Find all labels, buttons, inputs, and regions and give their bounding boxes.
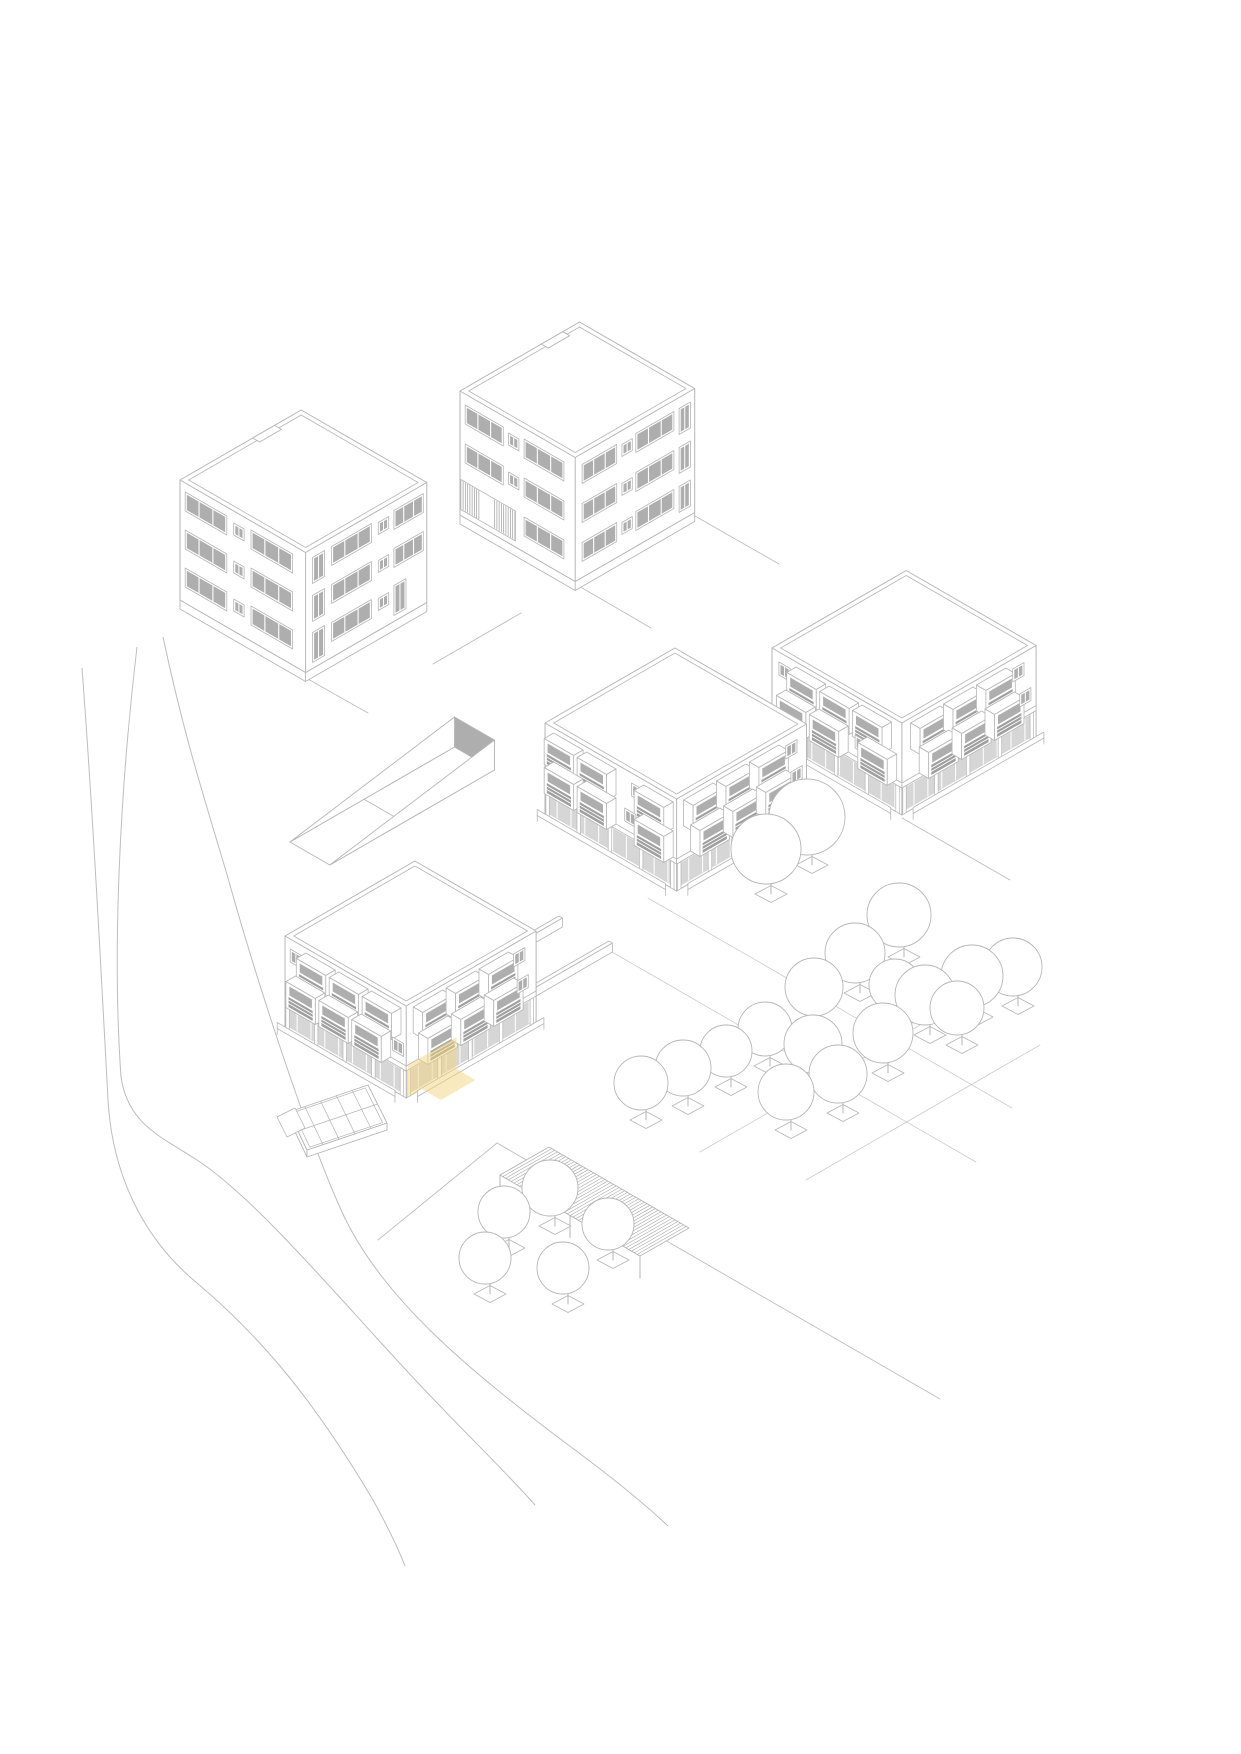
tree bbox=[809, 1045, 867, 1122]
tree-canopy bbox=[522, 1160, 578, 1216]
tree bbox=[537, 1242, 589, 1313]
tree-canopy bbox=[582, 1198, 634, 1250]
tree-canopy bbox=[537, 1242, 589, 1294]
trees bbox=[459, 779, 1042, 1313]
tree-canopy bbox=[853, 1003, 913, 1063]
axonometric-canvas bbox=[0, 0, 1241, 1754]
greenhouse bbox=[277, 1085, 387, 1157]
tree-canopy bbox=[930, 981, 984, 1035]
tree bbox=[930, 981, 984, 1054]
block-southwest bbox=[277, 861, 544, 1103]
tree-canopy bbox=[785, 958, 843, 1016]
tree-canopy bbox=[758, 1064, 814, 1120]
tree bbox=[731, 814, 801, 903]
tree bbox=[758, 1064, 814, 1139]
parking-ramp bbox=[290, 717, 494, 865]
tower-northwest bbox=[180, 410, 427, 682]
tree bbox=[614, 1056, 668, 1129]
tower-north bbox=[460, 322, 695, 591]
tree-canopy bbox=[459, 1232, 511, 1284]
tree-canopy bbox=[478, 1186, 530, 1238]
tree-canopy bbox=[809, 1045, 867, 1103]
tree bbox=[459, 1232, 511, 1303]
tree-canopy bbox=[731, 814, 801, 884]
site-axonometric-drawing bbox=[0, 0, 1241, 1754]
tree-canopy bbox=[614, 1056, 668, 1110]
tree bbox=[582, 1198, 634, 1269]
